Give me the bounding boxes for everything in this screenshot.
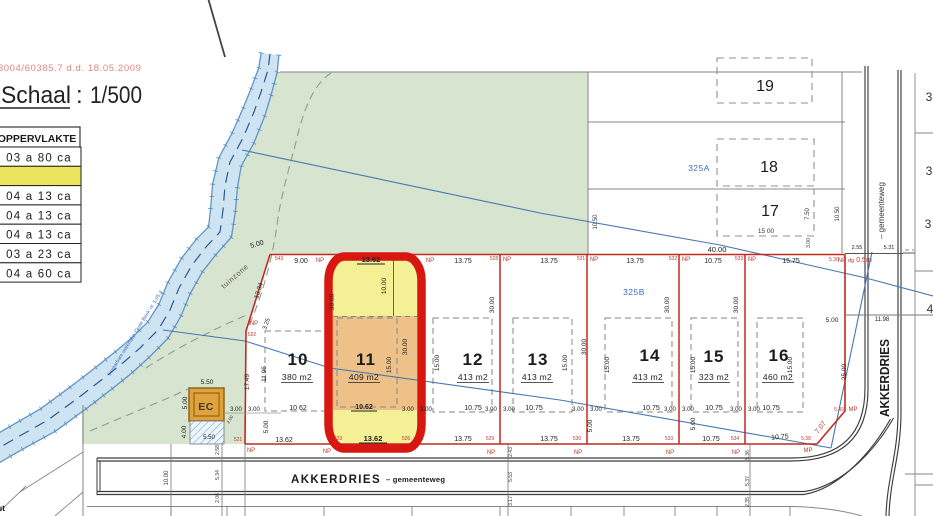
svg-text:5.00: 5.00 xyxy=(263,420,270,433)
svg-text:3.00: 3.00 xyxy=(230,407,242,413)
svg-text:15.00: 15.00 xyxy=(386,356,393,373)
svg-text:3.00: 3.00 xyxy=(730,407,742,413)
svg-text:NP: NP xyxy=(590,257,598,263)
svg-text:NP: NP xyxy=(682,257,690,263)
svg-text:5.43: 5.43 xyxy=(834,407,844,413)
svg-text:3.00: 3.00 xyxy=(402,407,414,413)
svg-text:04 a 13 ca: 04 a 13 ca xyxy=(6,210,72,222)
svg-text:528: 528 xyxy=(490,256,499,262)
svg-text:413 m2: 413 m2 xyxy=(633,372,663,382)
svg-text:3.00: 3.00 xyxy=(503,407,515,413)
svg-text:40.00: 40.00 xyxy=(708,245,727,254)
svg-text:533: 533 xyxy=(735,256,744,262)
svg-text:3.00: 3.00 xyxy=(248,407,260,413)
svg-text:NP: NP xyxy=(487,450,495,456)
svg-text:530: 530 xyxy=(573,436,582,442)
svg-text:04 a 13 ca: 04 a 13 ca xyxy=(6,230,72,242)
svg-text:10.62: 10.62 xyxy=(355,404,373,411)
svg-text:5.53: 5.53 xyxy=(508,472,514,482)
svg-text:5.00: 5.00 xyxy=(587,419,594,432)
svg-text:13.75: 13.75 xyxy=(454,258,472,265)
svg-text:0.5m: 0.5m xyxy=(856,257,872,264)
svg-text:EC: EC xyxy=(198,401,214,413)
svg-text:NP: NP xyxy=(666,450,674,456)
svg-text:10 62: 10 62 xyxy=(289,405,307,412)
svg-text:5.00: 5.00 xyxy=(826,317,839,324)
svg-text:10.00: 10.00 xyxy=(381,277,388,294)
svg-text:523: 523 xyxy=(334,436,343,442)
svg-text:534: 534 xyxy=(731,436,740,442)
svg-text:413 m2: 413 m2 xyxy=(522,372,552,382)
svg-text:MP: MP xyxy=(849,407,858,413)
svg-text:4: 4 xyxy=(927,302,933,316)
svg-text:3.00: 3.00 xyxy=(806,238,812,248)
svg-text:10.75: 10.75 xyxy=(525,405,543,412)
svg-text:NP: NP xyxy=(323,449,331,455)
svg-text:13.75: 13.75 xyxy=(540,258,558,265)
svg-text:NP: NP xyxy=(838,258,846,264)
svg-text:25.00: 25.00 xyxy=(841,363,848,380)
svg-text:529: 529 xyxy=(486,436,495,442)
svg-text:ut: ut xyxy=(0,503,5,513)
svg-text:11.96: 11.96 xyxy=(261,366,268,382)
svg-text:5.38: 5.38 xyxy=(801,436,811,442)
svg-text:13: 13 xyxy=(528,350,549,369)
svg-text:12: 12 xyxy=(463,350,484,369)
svg-text:13.75: 13.75 xyxy=(454,436,472,443)
svg-text:19: 19 xyxy=(756,78,774,95)
svg-text:43004/60385.7 d.d. 18.05.200: 43004/60385.7 d.d. 18.05.2009 xyxy=(0,63,141,74)
svg-text:NP: NP xyxy=(316,258,324,264)
svg-text:10.75: 10.75 xyxy=(762,405,780,412)
svg-text:17: 17 xyxy=(761,203,779,220)
svg-text:13.75: 13.75 xyxy=(540,436,558,443)
svg-text:10: 10 xyxy=(288,350,309,369)
svg-text:3: 3 xyxy=(926,164,933,178)
svg-text:9.00: 9.00 xyxy=(294,258,308,265)
svg-text:03 a 80 ca: 03 a 80 ca xyxy=(6,153,72,165)
svg-text:10.75: 10.75 xyxy=(642,405,660,412)
svg-text:2.58: 2.58 xyxy=(215,445,221,455)
svg-text:13.75: 13.75 xyxy=(622,436,640,443)
svg-text:10.50: 10.50 xyxy=(593,214,599,230)
svg-text:15.75: 15.75 xyxy=(782,258,800,265)
svg-text::: : xyxy=(76,82,83,109)
svg-text:5.31: 5.31 xyxy=(884,245,895,251)
svg-text:OPPERVLAKTE: OPPERVLAKTE xyxy=(0,133,76,145)
svg-text:30.00: 30.00 xyxy=(329,293,336,310)
svg-text:380 m2: 380 m2 xyxy=(282,372,312,382)
svg-text:3.17: 3.17 xyxy=(508,496,514,506)
svg-text:13.62: 13.62 xyxy=(362,255,381,264)
svg-text:10.75: 10.75 xyxy=(464,405,482,412)
svg-text:2.43: 2.43 xyxy=(508,447,514,457)
svg-text:15.00: 15.00 xyxy=(690,356,697,373)
svg-text:3.00: 3.00 xyxy=(420,407,432,413)
svg-text:3: 3 xyxy=(925,217,932,231)
svg-text:NP: NP xyxy=(426,258,434,264)
svg-text:15 00: 15 00 xyxy=(758,228,775,235)
svg-text:533: 533 xyxy=(665,436,674,442)
svg-text:NP: NP xyxy=(247,448,255,454)
svg-text:3.00: 3.00 xyxy=(682,407,694,413)
svg-text:10.00: 10.00 xyxy=(164,470,170,486)
svg-text:03 a 23 ca: 03 a 23 ca xyxy=(6,249,72,261)
svg-text:3.00: 3.00 xyxy=(748,407,760,413)
svg-text:10.50: 10.50 xyxy=(835,206,841,222)
svg-text:10.75: 10.75 xyxy=(704,258,722,265)
svg-text:30.00: 30.00 xyxy=(489,296,496,313)
svg-text:2.55: 2.55 xyxy=(852,245,863,251)
svg-text:4.00: 4.00 xyxy=(181,425,188,438)
svg-text:543: 543 xyxy=(275,256,284,262)
svg-text:NP: NP xyxy=(748,257,756,263)
svg-text:30.00: 30.00 xyxy=(664,296,671,313)
svg-text:522: 522 xyxy=(248,332,257,338)
svg-text:521: 521 xyxy=(234,437,243,443)
svg-text:325A: 325A xyxy=(688,163,710,173)
svg-text:413 m2: 413 m2 xyxy=(458,372,488,382)
svg-text:– gemeenteweg: – gemeenteweg xyxy=(877,182,886,239)
svg-text:5.50: 5.50 xyxy=(203,435,215,441)
svg-text:NP: NP xyxy=(250,321,258,327)
svg-text:11.98: 11.98 xyxy=(875,317,890,323)
svg-text:13.62: 13.62 xyxy=(364,434,383,443)
svg-text:10.75: 10.75 xyxy=(702,436,720,443)
svg-text:dg: dg xyxy=(848,258,854,264)
svg-text:18: 18 xyxy=(760,159,778,176)
svg-text:04 a 13 ca: 04 a 13 ca xyxy=(6,191,72,203)
svg-text:3.00: 3.00 xyxy=(664,407,676,413)
svg-text:10.75: 10.75 xyxy=(705,405,723,412)
svg-text:13.75: 13.75 xyxy=(626,258,644,265)
svg-text:323 m2: 323 m2 xyxy=(699,372,729,382)
svg-text:531: 531 xyxy=(577,256,586,262)
svg-text:Schaal: Schaal xyxy=(1,82,71,109)
svg-text:3.00: 3.00 xyxy=(590,407,602,413)
svg-text:526: 526 xyxy=(402,436,411,442)
svg-text:30.00: 30.00 xyxy=(733,296,740,313)
svg-text:3.00: 3.00 xyxy=(572,407,584,413)
svg-text:13.62: 13.62 xyxy=(275,437,293,444)
svg-text:14: 14 xyxy=(640,346,661,365)
svg-text:MP: MP xyxy=(804,448,813,454)
svg-text:15.00: 15.00 xyxy=(434,354,441,371)
svg-text:2.06: 2.06 xyxy=(215,493,221,503)
svg-text:– gemeenteweg: – gemeenteweg xyxy=(386,475,445,484)
svg-text:NP: NP xyxy=(503,257,511,263)
svg-text:409 m2: 409 m2 xyxy=(349,372,379,382)
svg-text:AKKERDRIES: AKKERDRIES xyxy=(878,339,892,417)
svg-text:5.00: 5.00 xyxy=(690,417,697,430)
svg-text:10.75: 10.75 xyxy=(771,433,789,441)
svg-text:532: 532 xyxy=(669,256,678,262)
svg-text:5.37: 5.37 xyxy=(745,476,751,486)
svg-text:3.25: 3.25 xyxy=(262,317,272,331)
svg-text:5.34: 5.34 xyxy=(215,470,221,480)
svg-text:5.00: 5.00 xyxy=(182,396,189,409)
svg-text:5.36: 5.36 xyxy=(745,450,751,460)
svg-text:30.00: 30.00 xyxy=(581,338,588,355)
svg-text:NP: NP xyxy=(732,450,740,456)
svg-text:11: 11 xyxy=(356,350,376,369)
svg-text:2.35: 2.35 xyxy=(745,497,751,507)
svg-text:NP: NP xyxy=(574,450,582,456)
svg-text:04 a 60 ca: 04 a 60 ca xyxy=(6,268,72,280)
svg-text:15: 15 xyxy=(704,347,725,366)
svg-text:7.50: 7.50 xyxy=(805,208,811,220)
svg-text:3: 3 xyxy=(926,90,933,104)
svg-text:30.00: 30.00 xyxy=(402,338,409,355)
svg-text:325B: 325B xyxy=(623,287,645,297)
svg-text:3.00: 3.00 xyxy=(485,407,497,413)
svg-text:15.00: 15.00 xyxy=(787,356,794,373)
svg-text:AKKERDRIES: AKKERDRIES xyxy=(291,474,381,486)
svg-text:15.00: 15.00 xyxy=(604,356,611,373)
svg-text:1/500: 1/500 xyxy=(90,82,142,109)
svg-text:17.49: 17.49 xyxy=(244,373,251,390)
svg-text:15.00: 15.00 xyxy=(562,354,569,371)
svg-text:5.50: 5.50 xyxy=(201,379,214,386)
